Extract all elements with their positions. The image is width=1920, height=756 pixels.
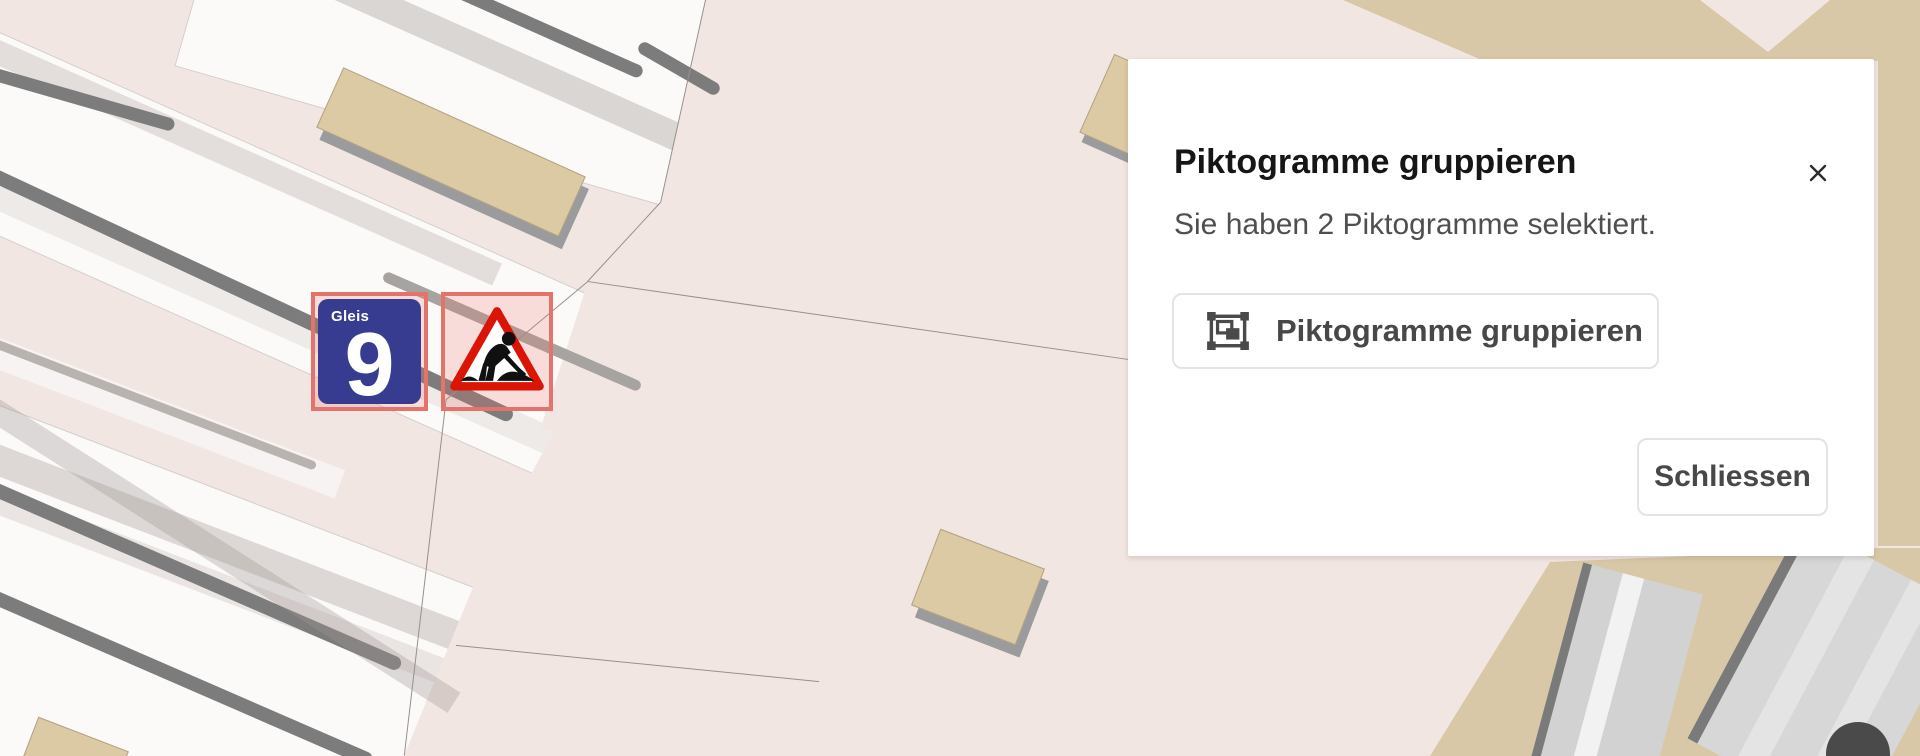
object-group-icon bbox=[1207, 312, 1249, 350]
track-9-sign: Gleis 9 bbox=[318, 299, 421, 404]
selected-pictogram-track-9[interactable]: Gleis 9 bbox=[311, 292, 428, 411]
dialog-message: Sie haben 2 Piktogramme selektiert. bbox=[1174, 205, 1656, 246]
schliessen-button-label: Schliessen bbox=[1654, 460, 1811, 494]
selected-pictogram-construction[interactable] bbox=[441, 292, 553, 411]
group-pictograms-button[interactable]: Piktogramme gruppieren bbox=[1172, 293, 1659, 369]
schliessen-button[interactable]: Schliessen bbox=[1637, 438, 1828, 516]
roof-stripe bbox=[1569, 573, 1645, 756]
dialog-title: Piktogramme gruppieren bbox=[1174, 145, 1576, 179]
map-canvas[interactable]: Gleis 9 Piktogramme gruppiere bbox=[0, 0, 1920, 756]
group-pictograms-dialog: Piktogramme gruppieren Sie haben 2 Pikto… bbox=[1128, 59, 1874, 556]
track-sign-number: 9 bbox=[318, 320, 421, 404]
dialog-close-button[interactable] bbox=[1806, 161, 1830, 185]
close-icon bbox=[1808, 163, 1828, 183]
group-pictograms-button-label: Piktogramme gruppieren bbox=[1276, 313, 1643, 349]
construction-warning-icon bbox=[448, 299, 546, 404]
